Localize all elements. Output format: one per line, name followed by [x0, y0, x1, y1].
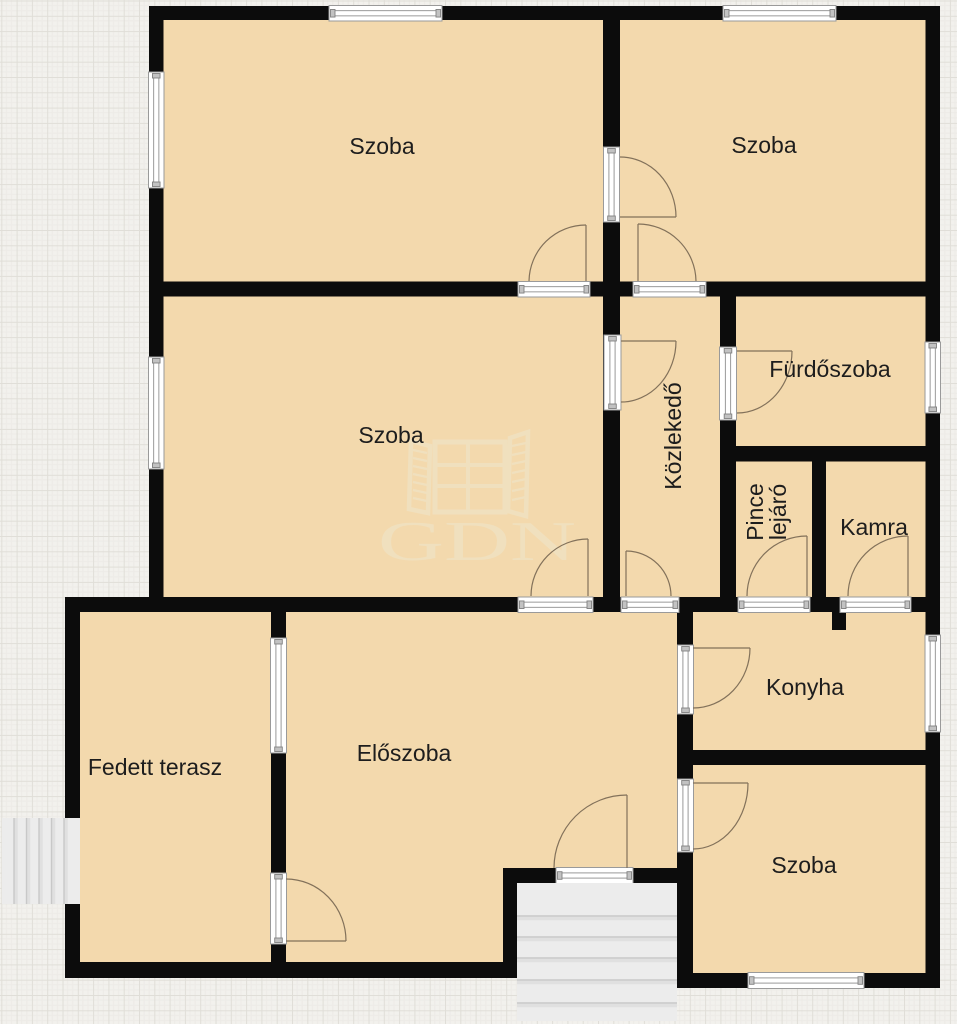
svg-text:Szoba: Szoba [349, 133, 414, 159]
svg-text:lejáró: lejáró [765, 484, 791, 540]
svg-text:Konyha: Konyha [766, 674, 844, 700]
svg-text:Előszoba: Előszoba [357, 740, 452, 766]
svg-text:GDN: GDN [378, 511, 576, 573]
svg-text:Szoba: Szoba [358, 422, 423, 448]
svg-text:Fedett terasz: Fedett terasz [88, 754, 222, 780]
svg-text:Fürdőszoba: Fürdőszoba [769, 356, 891, 382]
svg-text:Kamra: Kamra [840, 514, 908, 540]
svg-text:Közlekedő: Közlekedő [660, 382, 686, 489]
svg-text:Szoba: Szoba [731, 132, 796, 158]
svg-text:Szoba: Szoba [771, 852, 836, 878]
